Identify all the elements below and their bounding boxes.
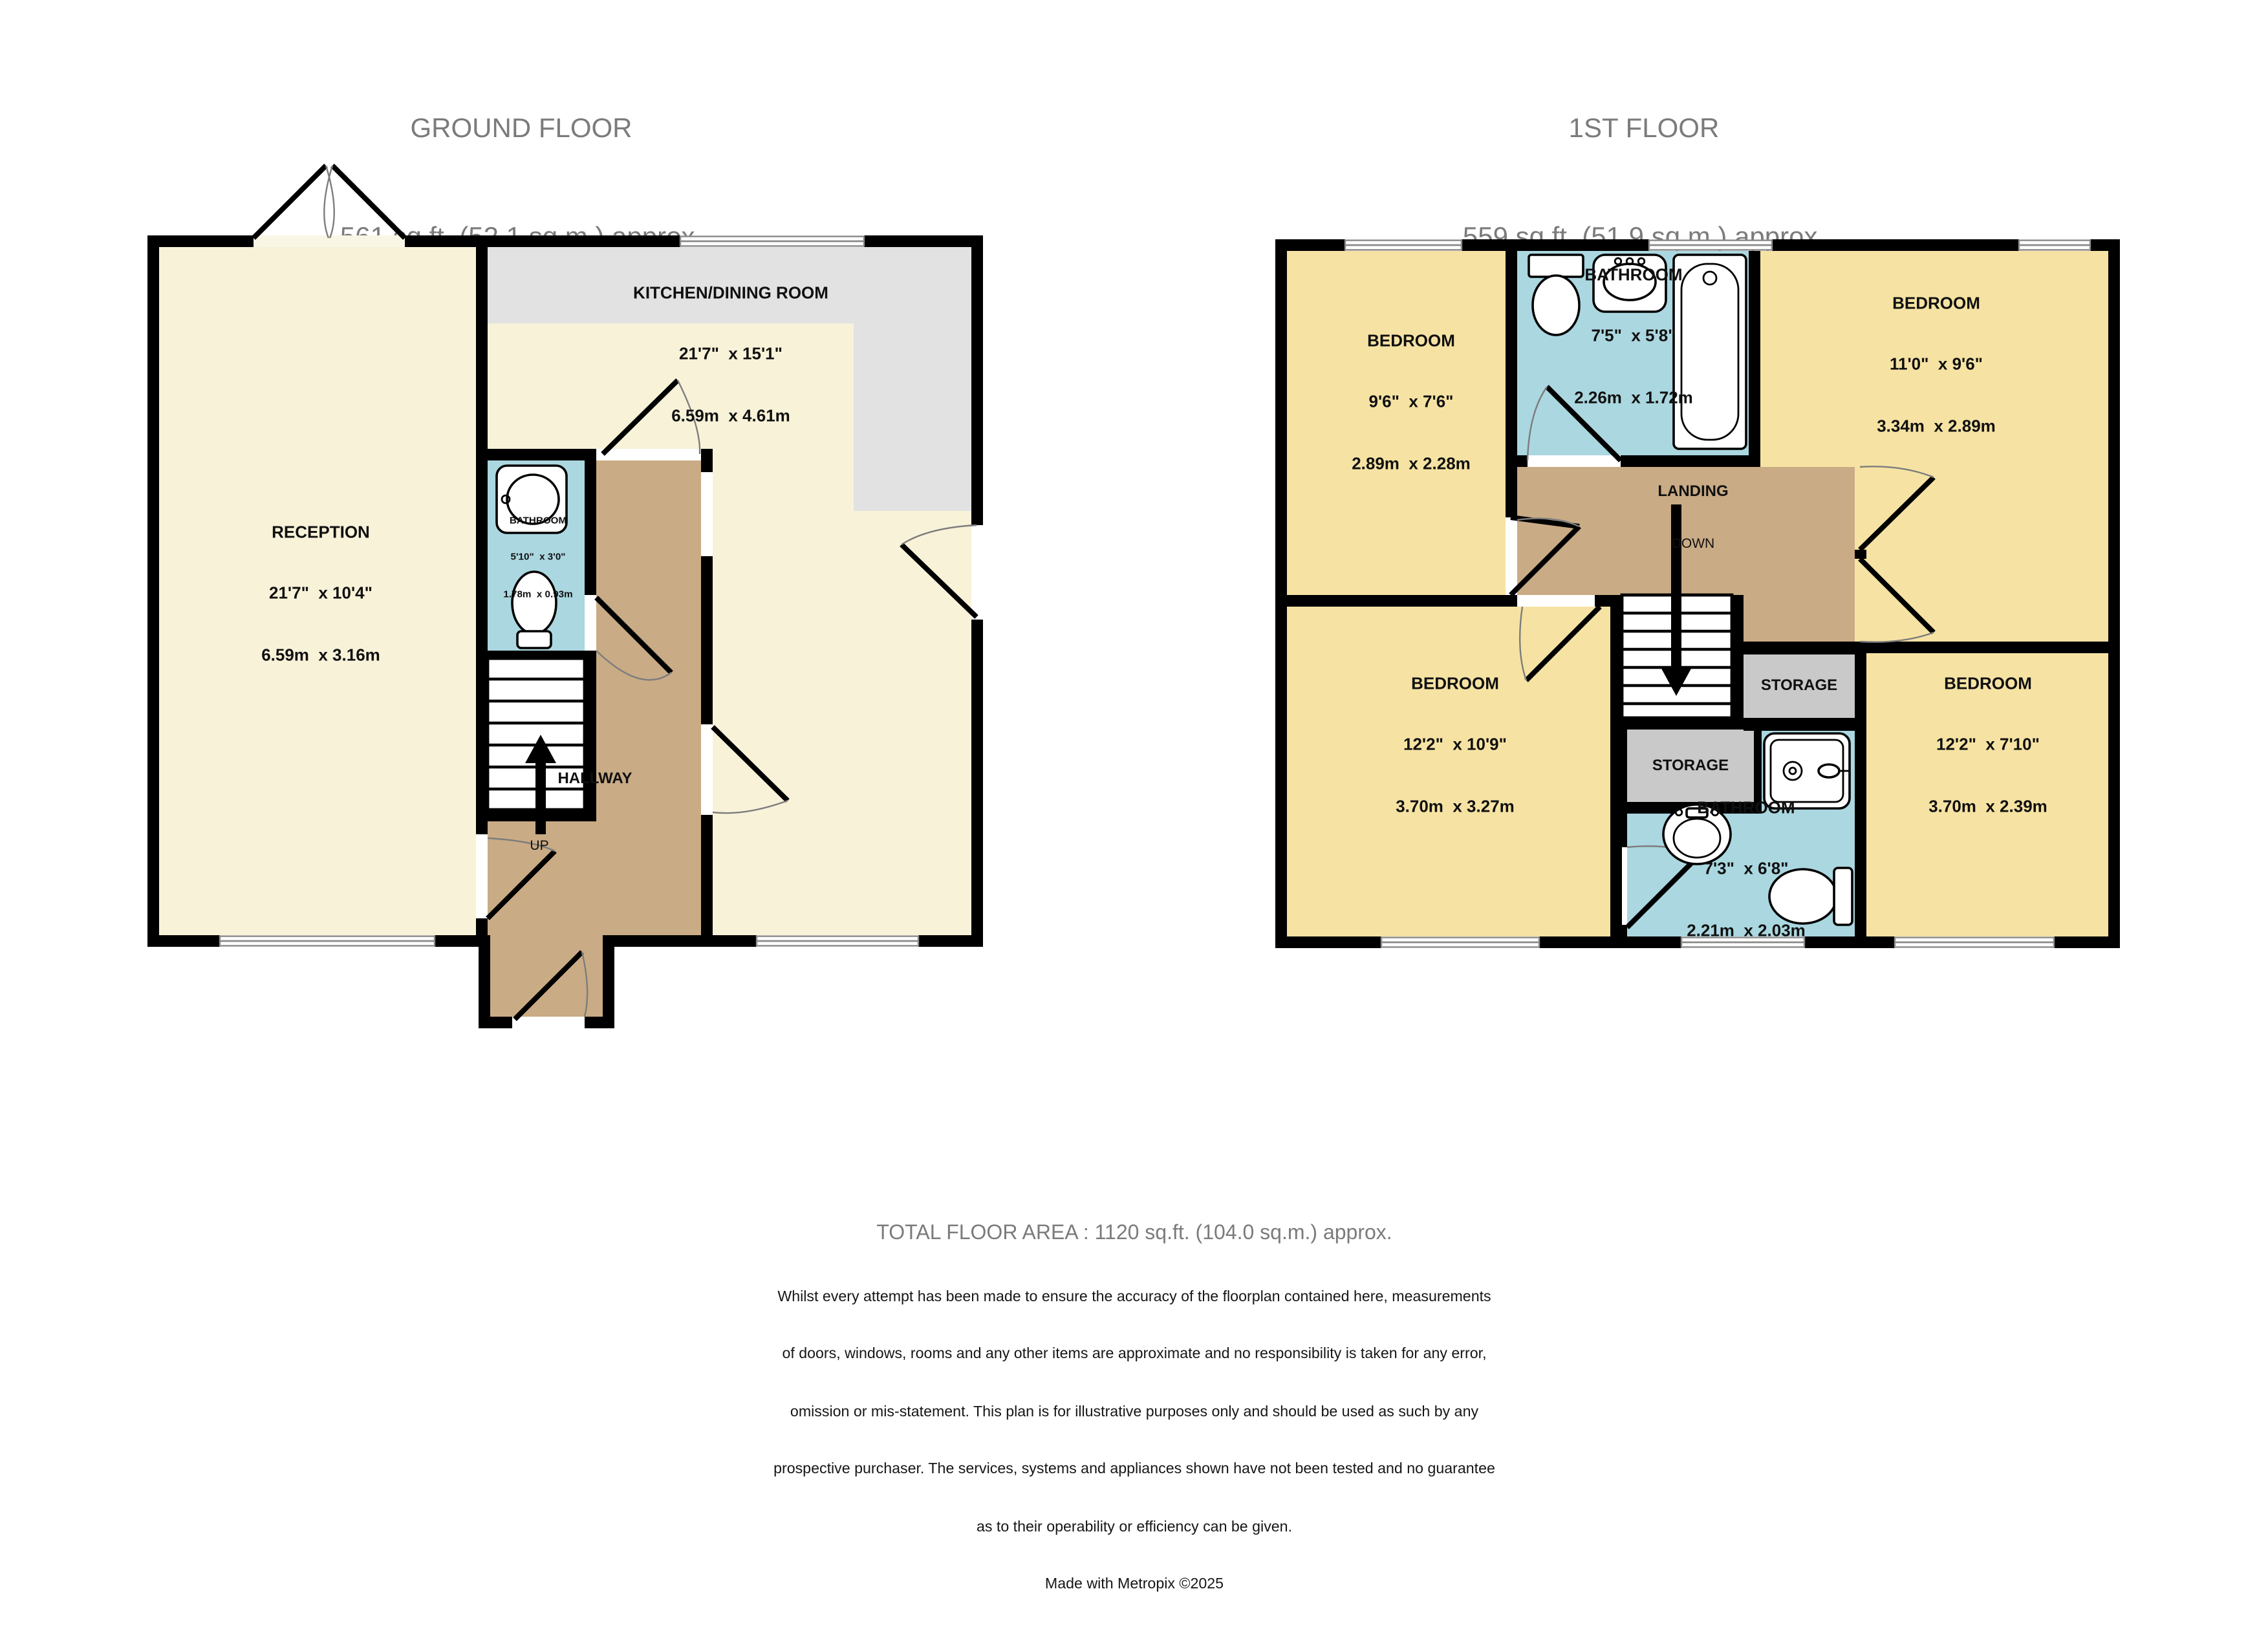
ground-bathroom-label: BATHROOM 5'10" x 3'0" 1.78m x 0.93m bbox=[503, 490, 572, 625]
disclaimer: Whilst every attempt has been made to en… bbox=[773, 1249, 1495, 1633]
bedroom-bottom-left-label: BEDROOM 12'2" x 10'9" 3.70m x 3.27m bbox=[1396, 633, 1515, 858]
bathroom-top-label: BATHROOM 7'5" x 5'8" 2.26m x 1.72m bbox=[1574, 224, 1693, 449]
stairs-down-label: DOWN bbox=[1658, 536, 1728, 553]
disclaimer-line: as to their operability or efficiency ca… bbox=[773, 1518, 1495, 1537]
credit-line: Made with Metropix ©2025 bbox=[773, 1575, 1495, 1595]
disclaimer-line: of doors, windows, rooms and any other i… bbox=[773, 1345, 1495, 1365]
kitchen-label: KITCHEN/DINING ROOM 21'7" x 15'1" 6.59m … bbox=[633, 242, 828, 468]
total-floor-area: TOTAL FLOOR AREA : 1120 sq.ft. (104.0 sq… bbox=[876, 1222, 1392, 1246]
disclaimer-line: Whilst every attempt has been made to en… bbox=[773, 1288, 1495, 1307]
french-doors-icon bbox=[254, 166, 405, 238]
hallway-label: HALLWAY bbox=[557, 731, 632, 826]
reception-label: RECEPTION 21'7" x 10'4" 6.59m x 3.16m bbox=[261, 481, 380, 707]
ground-floor-title-line: GROUND FLOOR bbox=[340, 112, 702, 147]
disclaimer-line: omission or mis-statement. This plan is … bbox=[773, 1403, 1495, 1422]
disclaimer-line: prospective purchaser. The services, sys… bbox=[773, 1460, 1495, 1480]
bedroom-top-left-label: BEDROOM 9'6" x 7'6" 2.89m x 2.28m bbox=[1352, 290, 1471, 515]
landing-label: LANDING DOWN bbox=[1658, 444, 1728, 590]
storage-upper-label: STORAGE bbox=[1761, 638, 1837, 733]
floorplan-page: GROUND FLOOR 561 sq.ft. (52.1 sq.m.) app… bbox=[0, 0, 2268, 1359]
bedroom-bottom-right-label: BEDROOM 12'2" x 7'10" 3.70m x 2.39m bbox=[1928, 633, 2047, 858]
stairs-up-label: UP bbox=[530, 805, 548, 887]
french-door-opening bbox=[254, 235, 405, 247]
first-floor-title-line: 1ST FLOOR bbox=[1463, 112, 1825, 147]
bedroom-top-right-label: BEDROOM 11'0" x 9'6" 3.34m x 2.89m bbox=[1877, 252, 1996, 478]
bathroom-bottom-label: BATHROOM 7'3" x 6'8" 2.21m x 2.03m bbox=[1687, 757, 1806, 982]
